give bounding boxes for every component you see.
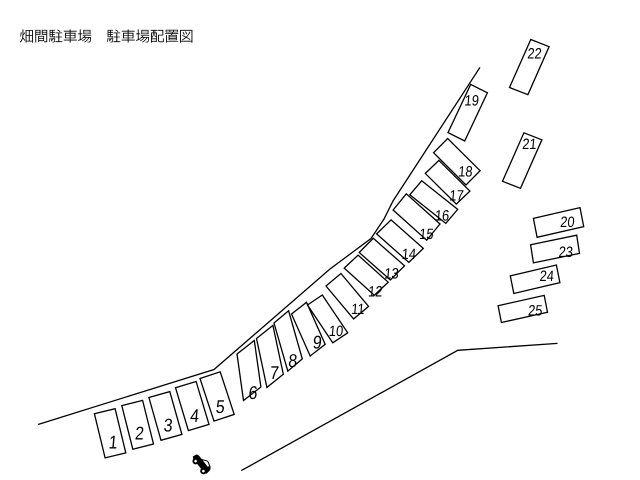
svg-text:3: 3	[163, 414, 174, 435]
svg-text:20: 20	[560, 213, 576, 230]
svg-text:25: 25	[527, 301, 543, 318]
svg-text:10: 10	[328, 322, 344, 339]
svg-text:12: 12	[367, 282, 383, 299]
svg-text:21: 21	[522, 135, 538, 152]
svg-text:15: 15	[419, 225, 435, 242]
svg-text:18: 18	[458, 163, 474, 180]
svg-text:19: 19	[464, 92, 480, 109]
svg-text:23: 23	[558, 243, 574, 260]
svg-text:13: 13	[384, 265, 400, 282]
svg-text:16: 16	[434, 207, 450, 224]
svg-text:8: 8	[288, 350, 299, 371]
svg-text:14: 14	[401, 245, 417, 262]
svg-text:17: 17	[449, 187, 465, 204]
svg-text:24: 24	[539, 267, 555, 284]
svg-text:7: 7	[269, 362, 280, 383]
svg-text:6: 6	[248, 382, 259, 403]
svg-text:2: 2	[134, 423, 145, 444]
svg-text:9: 9	[312, 331, 323, 352]
svg-text:22: 22	[527, 45, 543, 62]
svg-text:1: 1	[108, 431, 119, 452]
svg-text:11: 11	[351, 300, 366, 317]
svg-text:4: 4	[189, 405, 200, 426]
svg-text:5: 5	[215, 396, 226, 417]
